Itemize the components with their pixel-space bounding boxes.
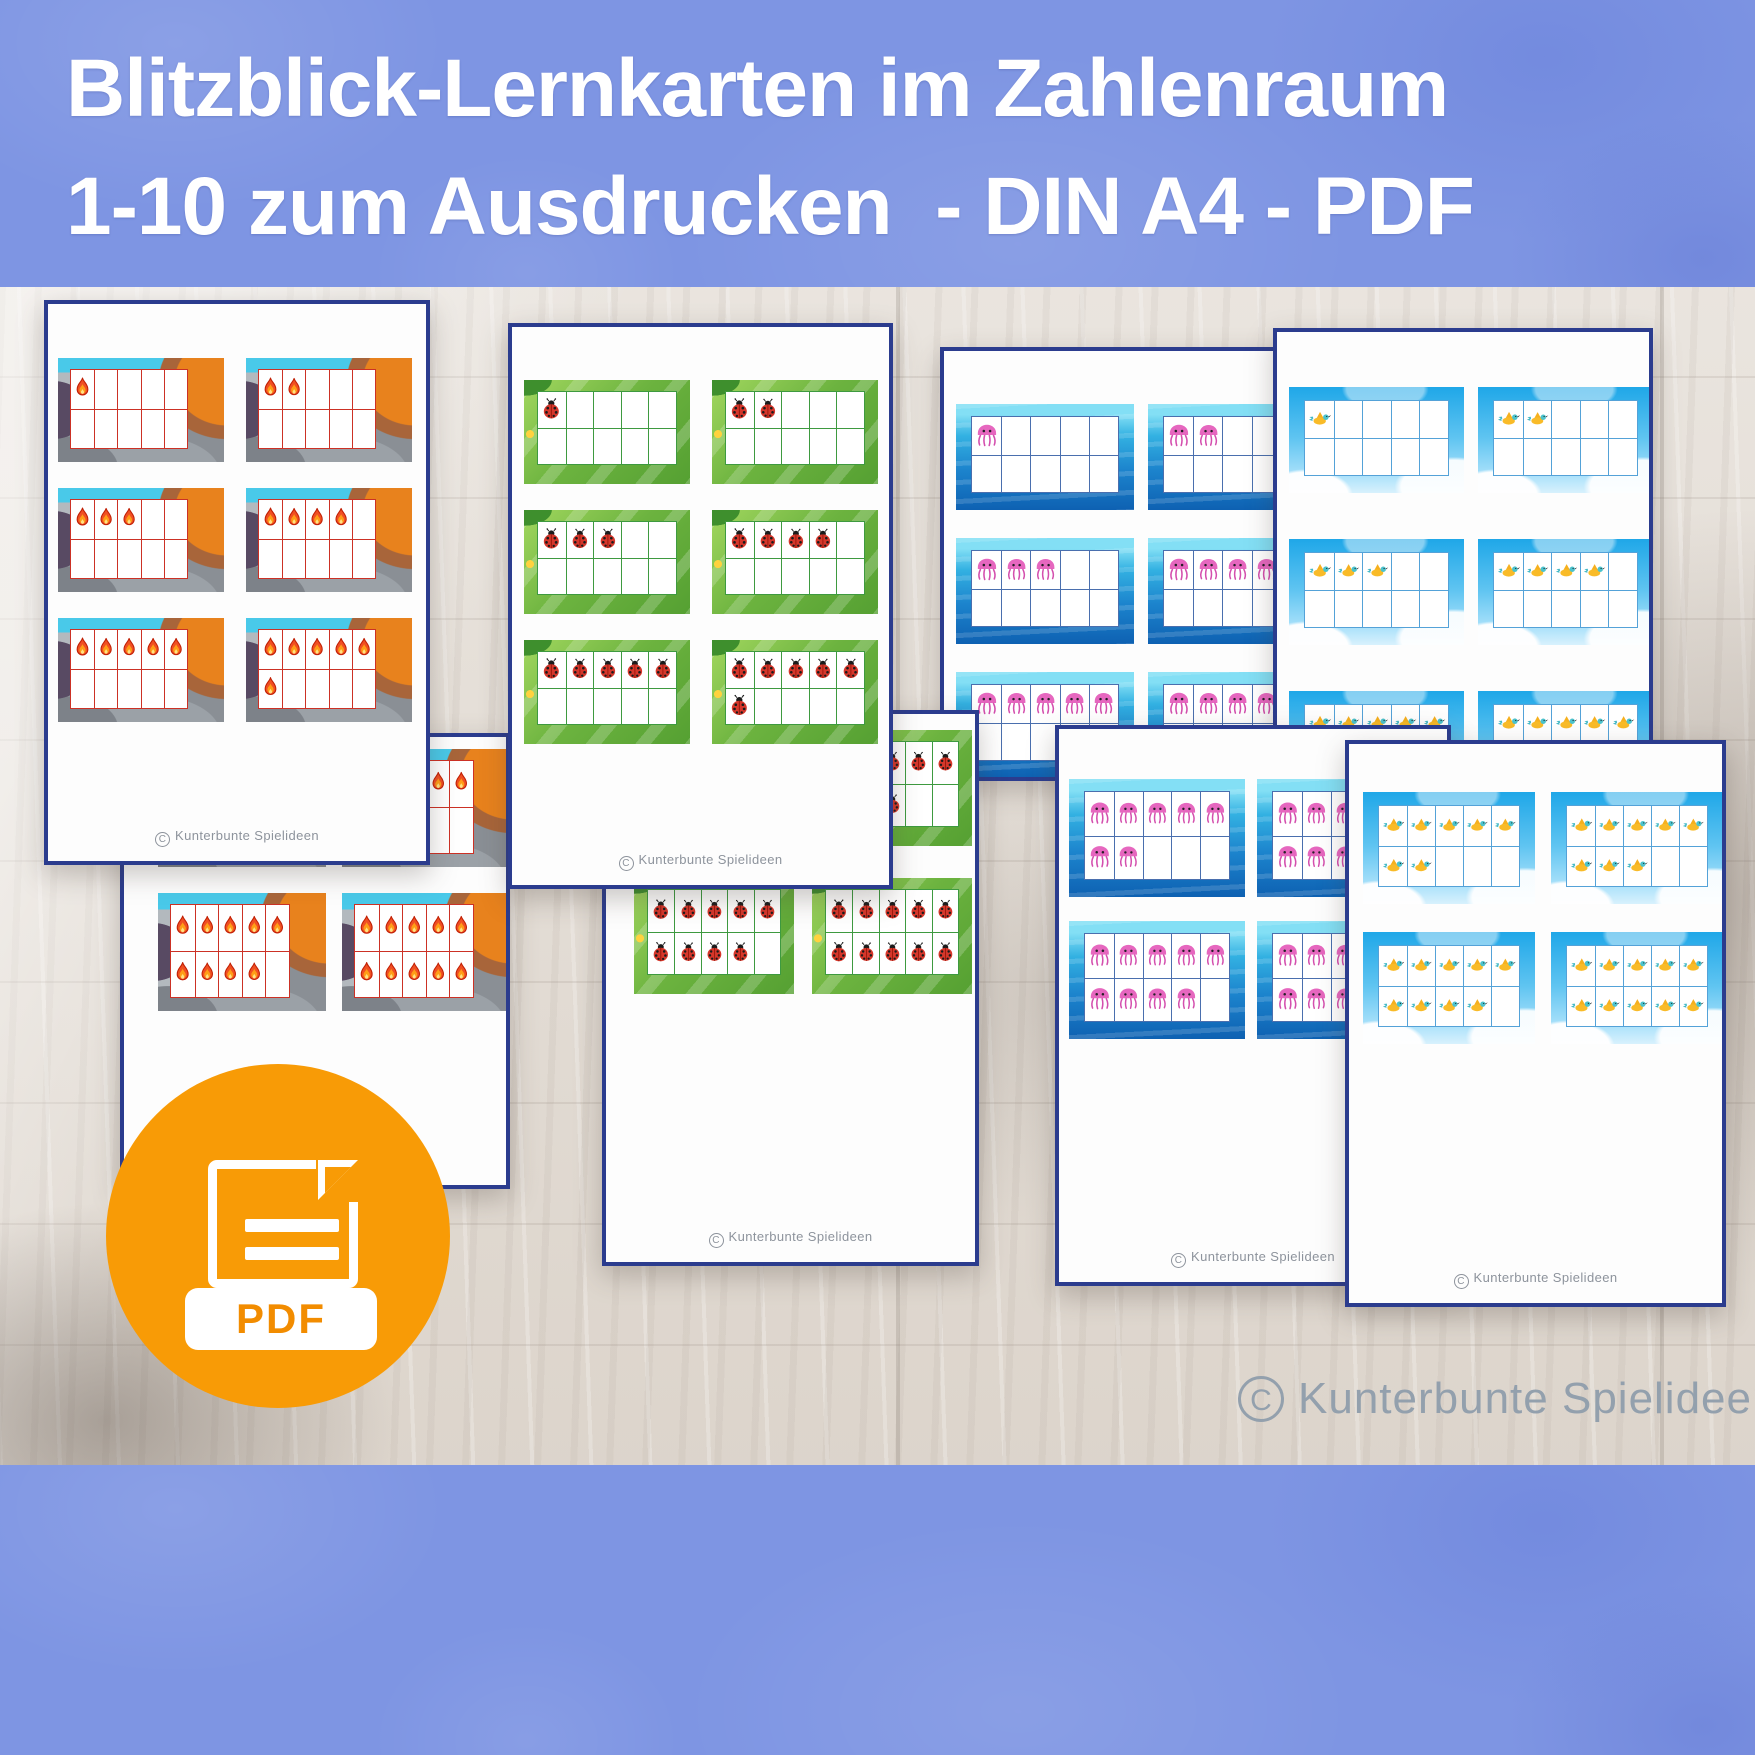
ten-frame-cell	[1030, 685, 1059, 723]
ten-frame-cell	[1143, 792, 1172, 836]
ten-frame-cell	[538, 522, 566, 558]
ten-frame-cell	[1164, 417, 1193, 455]
ten-frame-cell	[141, 409, 164, 448]
ten-frame-cell	[1222, 589, 1251, 627]
ten-frame-cell	[754, 428, 782, 464]
ten-frame-grid	[70, 499, 188, 579]
ten-frame-grid	[1493, 552, 1638, 628]
ten-frame-cell	[282, 630, 305, 669]
ten-frame-cell	[566, 522, 594, 558]
ten-frame-cell	[141, 669, 164, 708]
ten-frame-cell	[1491, 806, 1519, 846]
ten-frame-cell	[1114, 792, 1143, 836]
ten-frame-cell	[352, 630, 375, 669]
ten-frame-cell	[259, 500, 282, 539]
ladybug-icon	[730, 891, 751, 929]
ten-frame-cell	[71, 409, 94, 448]
jellyfish-icon	[1197, 552, 1220, 586]
bird-icon	[1337, 554, 1360, 587]
ten-frame-grid	[725, 521, 865, 595]
ten-frame-card-air-4	[1478, 539, 1653, 645]
ten-frame-cell	[1114, 836, 1143, 880]
pdf-badge: PDF	[106, 1064, 450, 1408]
ten-frame-cell	[648, 428, 676, 464]
bird-icon	[1682, 988, 1704, 1023]
ten-frame-cell	[1463, 986, 1491, 1026]
ten-frame-cell	[141, 539, 164, 578]
ladybug-icon	[828, 891, 850, 929]
ladybug-icon	[728, 393, 751, 425]
ten-frame-cell	[379, 905, 403, 951]
bird-icon	[1382, 807, 1405, 843]
ten-frame-cell	[1089, 455, 1118, 493]
ladybug-icon	[652, 653, 674, 685]
ten-frame-cell	[538, 428, 566, 464]
bird-icon	[1682, 807, 1704, 843]
ten-frame-cell	[781, 428, 809, 464]
jellyfish-icon	[1175, 979, 1198, 1017]
jellyfish-icon	[1034, 686, 1057, 720]
ladybug-icon	[540, 523, 563, 555]
ten-frame-grid	[971, 416, 1119, 493]
ten-frame-cell	[265, 905, 289, 951]
ten-frame-cell	[94, 630, 117, 669]
ten-frame-cell	[259, 539, 282, 578]
ten-frame-cell	[836, 558, 864, 594]
ten-frame-cell	[1379, 986, 1407, 1026]
flame-icon	[144, 630, 162, 665]
ten-frame-cell	[648, 558, 676, 594]
ten-frame-grid	[537, 651, 677, 725]
jellyfish-icon	[1117, 837, 1140, 875]
ten-frame-cell	[781, 688, 809, 724]
ten-frame-cell	[621, 392, 649, 428]
ten-frame-cell	[1608, 401, 1637, 438]
ten-frame-cell	[305, 539, 328, 578]
jellyfish-icon	[1305, 979, 1328, 1017]
ladybug-icon	[908, 743, 929, 781]
ten-frame-cell	[701, 932, 727, 974]
flame-icon	[405, 905, 424, 946]
ten-frame-cell	[94, 539, 117, 578]
copyright-watermark: C Kunterbunte Spielideen	[1238, 1374, 1755, 1424]
ten-frame-cell	[1491, 946, 1519, 986]
ten-frame-grid	[1304, 552, 1449, 628]
ten-frame-cell	[402, 905, 426, 951]
ten-frame-cell	[621, 522, 649, 558]
copyright-icon: C	[1171, 1253, 1186, 1268]
ten-frame-cell	[1580, 438, 1609, 475]
ten-frame-cell	[809, 428, 837, 464]
flame-icon	[198, 905, 217, 946]
ten-frame-grid	[258, 499, 376, 579]
flame-icon	[357, 905, 376, 946]
ten-frame-cell	[566, 392, 594, 428]
jellyfish-icon	[1305, 837, 1328, 875]
ten-frame-cell	[164, 630, 187, 669]
ten-frame-cell	[1651, 846, 1679, 886]
ladybug-icon	[828, 934, 850, 971]
ten-frame-cell	[1200, 934, 1229, 978]
ten-frame-cell	[1623, 946, 1651, 986]
ladybug-icon	[785, 653, 807, 685]
document-text-line	[245, 1247, 339, 1260]
ten-frame-card-air-3	[1289, 539, 1464, 645]
ten-frame-cell	[1302, 934, 1331, 978]
ten-frame-cell	[726, 428, 754, 464]
page-copyright-caption: CKunterbunte Spielideen	[1349, 1270, 1722, 1289]
ten-frame-cell	[1143, 934, 1172, 978]
ten-frame-card-fire-1	[58, 358, 224, 462]
ten-frame-cell	[1001, 723, 1030, 761]
flame-icon	[285, 630, 303, 665]
ten-frame-cell	[566, 558, 594, 594]
ten-frame-grid	[1084, 791, 1230, 880]
bird-icon	[1654, 947, 1676, 983]
flame-icon	[452, 952, 471, 993]
ten-frame-cell	[1200, 978, 1229, 1022]
ten-frame-cell	[117, 409, 140, 448]
ten-frame-cell	[164, 539, 187, 578]
jellyfish-icon	[1167, 418, 1191, 452]
ten-frame-cell	[754, 652, 782, 688]
ten-frame-cell	[1551, 553, 1580, 590]
jellyfish-icon	[1167, 686, 1191, 720]
ten-frame-cell	[1222, 417, 1251, 455]
ladybug-icon	[728, 690, 751, 722]
ten-frame-cell	[1001, 551, 1030, 589]
bird-icon	[1466, 807, 1488, 843]
ten-frame-cell	[282, 669, 305, 708]
ladybug-icon	[597, 523, 619, 555]
ten-frame-cell	[972, 417, 1001, 455]
jellyfish-icon	[1197, 686, 1220, 720]
ten-frame-card-earth-4	[712, 510, 878, 614]
ten-frame-cell	[1030, 589, 1059, 627]
flame-icon	[261, 370, 280, 405]
ladybug-icon	[856, 891, 877, 929]
bird-icon	[1555, 706, 1578, 739]
ten-frame-cell	[1193, 589, 1222, 627]
ten-frame-cell	[1030, 551, 1059, 589]
ten-frame-cell	[836, 522, 864, 558]
ten-frame-cell	[593, 522, 621, 558]
ladybug-icon	[785, 523, 807, 555]
ten-frame-cell	[1060, 589, 1089, 627]
ten-frame-cell	[1222, 685, 1251, 723]
jellyfish-icon	[975, 418, 999, 452]
copyright-icon: C	[155, 832, 170, 847]
ten-frame-cell	[1001, 685, 1030, 723]
ten-frame-card-earth-3	[524, 510, 690, 614]
ten-frame-cell	[836, 652, 864, 688]
preview-page-earth-1: CKunterbunte Spielideen	[508, 323, 893, 889]
ten-frame-cell	[117, 630, 140, 669]
jellyfish-icon	[1088, 837, 1112, 875]
ten-frame-card-fire-2	[246, 358, 412, 462]
ten-frame-cell	[1391, 438, 1420, 475]
ladybug-icon	[704, 891, 725, 929]
ten-frame-card-fire-10	[342, 893, 510, 1011]
ten-frame-cell	[1222, 551, 1251, 589]
caption-text: Kunterbunte Spielideen	[1191, 1249, 1335, 1264]
ten-frame-cell	[1305, 590, 1334, 627]
flame-icon	[332, 630, 350, 665]
ten-frame-card-fire-3	[58, 488, 224, 592]
bird-icon	[1438, 947, 1460, 983]
flame-icon	[355, 630, 373, 665]
ladybug-icon	[569, 653, 591, 685]
ten-frame-grid	[647, 889, 781, 975]
flame-icon	[73, 500, 92, 535]
ten-frame-cell	[726, 522, 754, 558]
ten-frame-cell	[1580, 590, 1609, 627]
ladybug-icon	[728, 523, 751, 555]
ten-frame-cell	[1567, 846, 1595, 886]
bird-icon	[1466, 988, 1488, 1023]
bird-icon	[1612, 706, 1635, 739]
flame-icon	[268, 905, 287, 946]
page-copyright-caption: CKunterbunte Spielideen	[48, 828, 426, 847]
ten-frame-cell	[1001, 589, 1030, 627]
flame-icon	[120, 500, 138, 535]
ten-frame-cell	[1491, 986, 1519, 1026]
jellyfish-icon	[1175, 935, 1198, 974]
bird-icon	[1555, 554, 1578, 587]
ten-frame-cell	[1608, 590, 1637, 627]
ten-frame-card-air-7	[1363, 792, 1535, 904]
jellyfish-icon	[1146, 979, 1169, 1017]
ten-frame-cell	[117, 539, 140, 578]
ten-frame-cell	[1419, 438, 1448, 475]
jellyfish-icon	[1088, 935, 1112, 974]
ladybug-icon	[650, 934, 672, 971]
ten-frame-cell	[972, 551, 1001, 589]
pdf-label-text: PDF	[236, 1295, 326, 1343]
ten-frame-cell	[195, 951, 219, 997]
ladybug-icon	[882, 934, 903, 971]
ten-frame-cell	[1334, 590, 1363, 627]
bird-icon	[1654, 807, 1676, 843]
ladybug-icon	[812, 523, 834, 555]
watermark-text: Kunterbunte Spielideen	[1298, 1374, 1755, 1424]
ten-frame-cell	[1334, 401, 1363, 438]
flame-icon	[261, 670, 280, 704]
ten-frame-cell	[1567, 946, 1595, 986]
ten-frame-cell	[1679, 806, 1707, 846]
bird-icon	[1438, 807, 1460, 843]
bird-icon	[1494, 947, 1516, 983]
ten-frame-cell	[1200, 836, 1229, 880]
ten-frame-cell	[141, 630, 164, 669]
ten-frame-cell	[754, 932, 780, 974]
jellyfish-icon	[1167, 552, 1191, 586]
ladybug-icon	[757, 523, 779, 555]
ten-frame-cell	[305, 500, 328, 539]
copyright-icon: C	[1454, 1274, 1469, 1289]
ladybug-icon	[624, 653, 646, 685]
flame-icon	[452, 905, 471, 946]
ten-frame-cell	[265, 951, 289, 997]
ten-frame-cell	[71, 539, 94, 578]
flame-icon	[332, 500, 350, 535]
ten-frame-cell	[1060, 685, 1089, 723]
ten-frame-cell	[1302, 792, 1331, 836]
ten-frame-cell	[1623, 846, 1651, 886]
ten-frame-cell	[809, 392, 837, 428]
bird-icon	[1382, 988, 1405, 1023]
ten-frame-cell	[1435, 986, 1463, 1026]
bird-icon	[1466, 947, 1488, 983]
ten-frame-cell	[648, 392, 676, 428]
ten-frame-cell	[1679, 986, 1707, 1026]
jellyfish-icon	[1276, 979, 1300, 1017]
ten-frame-cell	[726, 558, 754, 594]
ten-frame-cell	[71, 500, 94, 539]
ten-frame-cell	[1379, 806, 1407, 846]
ten-frame-cell	[754, 558, 782, 594]
bird-icon	[1494, 807, 1516, 843]
bird-icon	[1583, 706, 1606, 739]
ten-frame-cell	[1463, 846, 1491, 886]
card-grid	[512, 327, 889, 744]
bird-icon	[1497, 554, 1520, 587]
ten-frame-grid	[537, 521, 677, 595]
bird-icon	[1382, 848, 1405, 883]
ten-frame-cell	[71, 669, 94, 708]
ten-frame-cell	[538, 558, 566, 594]
ten-frame-cell	[1273, 934, 1302, 978]
ladybug-icon	[650, 891, 672, 929]
ten-frame-cell	[94, 500, 117, 539]
ten-frame-cell	[305, 630, 328, 669]
bird-icon	[1570, 988, 1593, 1023]
ten-frame-cell	[1362, 438, 1391, 475]
ten-frame-cell	[1164, 551, 1193, 589]
ten-frame-grid	[725, 651, 865, 725]
ten-frame-cell	[1089, 417, 1118, 455]
ten-frame-cell	[781, 392, 809, 428]
ten-frame-cell	[1463, 806, 1491, 846]
ten-frame-cell	[259, 409, 282, 448]
ten-frame-cell	[171, 905, 195, 951]
ten-frame-cell	[141, 370, 164, 409]
ten-frame-grid	[1378, 945, 1520, 1027]
ten-frame-cell	[1060, 417, 1089, 455]
ten-frame-cell	[1419, 590, 1448, 627]
flame-icon	[429, 952, 448, 993]
ten-frame-cell	[1362, 590, 1391, 627]
ten-frame-cell	[1494, 438, 1523, 475]
ten-frame-cell	[1419, 401, 1448, 438]
jellyfish-icon	[1204, 793, 1227, 832]
ten-frame-cell	[566, 428, 594, 464]
ten-frame-cell	[1407, 846, 1435, 886]
ten-frame-cell	[1523, 553, 1552, 590]
ten-frame-cell	[164, 409, 187, 448]
ten-frame-cell	[1302, 836, 1331, 880]
jellyfish-icon	[1117, 979, 1140, 1017]
bird-icon	[1410, 807, 1432, 843]
ten-frame-cell	[329, 669, 352, 708]
ten-frame-cell	[1085, 934, 1114, 978]
ten-frame-grid	[1378, 805, 1520, 887]
ten-frame-cell	[1523, 705, 1552, 742]
ten-frame-cell	[593, 392, 621, 428]
ten-frame-cell	[1595, 946, 1623, 986]
ten-frame-cell	[932, 932, 958, 974]
ten-frame-cell	[218, 905, 242, 951]
ten-frame-cell	[1164, 589, 1193, 627]
page-title-line-2: 1-10 zum Ausdrucken - DIN A4 - PDF	[66, 160, 1474, 254]
ten-frame-cell	[1580, 553, 1609, 590]
ten-frame-cell	[1193, 551, 1222, 589]
card-grid	[1349, 744, 1722, 1044]
bird-icon	[1497, 402, 1520, 435]
ten-frame-cell	[1334, 438, 1363, 475]
ten-frame-cell	[1362, 401, 1391, 438]
flame-icon	[173, 952, 192, 993]
ten-frame-cell	[94, 669, 117, 708]
ten-frame-grid	[354, 904, 474, 998]
bird-icon	[1626, 947, 1648, 983]
ten-frame-cell	[1463, 946, 1491, 986]
ten-frame-cell	[1551, 438, 1580, 475]
ten-frame-cell	[1085, 792, 1114, 836]
ten-frame-cell	[426, 905, 450, 951]
ladybug-icon	[730, 934, 751, 971]
ten-frame-cell	[1305, 438, 1334, 475]
bird-icon	[1570, 848, 1593, 883]
jellyfish-icon	[1063, 686, 1086, 720]
ten-frame-cell	[593, 428, 621, 464]
ten-frame-cell	[852, 932, 878, 974]
ten-frame-cell	[726, 652, 754, 688]
jellyfish-icon	[1117, 793, 1140, 832]
ten-frame-cell	[1143, 978, 1172, 1022]
bird-icon	[1382, 947, 1405, 983]
bird-icon	[1598, 988, 1620, 1023]
ten-frame-card-fire-4	[246, 488, 412, 592]
ten-frame-cell	[538, 688, 566, 724]
pdf-file-label: PDF	[185, 1288, 377, 1350]
ten-frame-cell	[1305, 401, 1334, 438]
ten-frame-cell	[1435, 806, 1463, 846]
ten-frame-cell	[164, 500, 187, 539]
ten-frame-cell	[1030, 455, 1059, 493]
ten-frame-cell	[1089, 589, 1118, 627]
flame-icon	[97, 630, 115, 665]
bird-icon	[1410, 947, 1432, 983]
ten-frame-cell	[754, 392, 782, 428]
bird-icon	[1526, 554, 1549, 587]
jellyfish-icon	[1276, 935, 1300, 974]
ten-frame-cell	[593, 558, 621, 594]
ten-frame-cell	[94, 409, 117, 448]
ten-frame-cell	[1060, 455, 1089, 493]
ten-frame-cell	[1494, 401, 1523, 438]
ten-frame-cell	[218, 951, 242, 997]
ten-frame-card-earth-9	[634, 878, 794, 994]
ten-frame-cell	[379, 951, 403, 997]
jellyfish-icon	[1276, 837, 1300, 875]
ten-frame-cell	[905, 890, 931, 932]
ten-frame-cell	[1523, 401, 1552, 438]
ten-frame-cell	[1551, 401, 1580, 438]
ten-frame-cell	[1523, 438, 1552, 475]
ten-frame-grid	[70, 629, 188, 709]
ten-frame-cell	[754, 688, 782, 724]
